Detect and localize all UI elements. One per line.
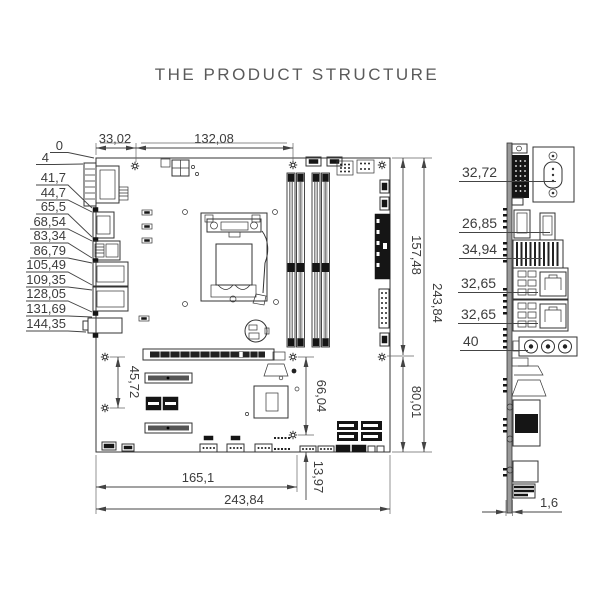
side-usb3-stack bbox=[513, 240, 563, 268]
dimension-interior: 45,72 66,04 bbox=[110, 357, 329, 435]
audio-connector bbox=[83, 318, 122, 333]
pcie-x16-slot bbox=[143, 349, 288, 376]
dim-top-33-02: 33,02 bbox=[99, 131, 132, 146]
dim-left-44-7: 44,7 bbox=[41, 185, 66, 200]
front-panel-header bbox=[274, 437, 290, 450]
side-displayport-connector bbox=[540, 213, 555, 240]
sata-ports bbox=[337, 421, 382, 441]
solder-pins bbox=[503, 208, 507, 477]
pcb-outline bbox=[96, 158, 390, 452]
dim-left-83-34: 83,34 bbox=[33, 228, 66, 243]
mounting-hole-icon bbox=[378, 161, 386, 169]
product-structure-drawing: THE PRODUCT STRUCTURE bbox=[0, 0, 600, 600]
dim-top-132-08: 132,08 bbox=[194, 131, 234, 146]
pch-chipset bbox=[254, 386, 288, 418]
dim-left-105-49: 105,49 bbox=[26, 257, 66, 272]
dim-left-65-5: 65,5 bbox=[41, 199, 66, 214]
dimension-top: 33,02 132,08 bbox=[96, 131, 293, 162]
pcie-x1-slot bbox=[145, 423, 192, 433]
dim-bottom-165-1: 165,1 bbox=[182, 470, 215, 485]
mounting-hole-icon bbox=[101, 353, 109, 361]
interior-headers-left bbox=[139, 210, 152, 321]
mounting-hole-icon bbox=[289, 353, 297, 361]
dim-left-86-79: 86,79 bbox=[33, 243, 66, 258]
dim-left-68-54: 68,54 bbox=[33, 214, 66, 229]
displayport-connector bbox=[93, 241, 120, 260]
motherboard-side-view: 32,72 26,85 34,94 32,65 32,65 40 1,6 bbox=[458, 143, 577, 516]
expansion-slots bbox=[143, 349, 288, 433]
dvi-serial-connector bbox=[84, 163, 128, 206]
dim-left-0: 0 bbox=[56, 138, 63, 153]
mounting-hole-icon bbox=[101, 404, 109, 412]
cpu-socket bbox=[201, 213, 268, 305]
motherboard-top-view bbox=[83, 157, 390, 452]
atx12v-power-connector bbox=[172, 160, 189, 176]
board-holes bbox=[183, 210, 300, 416]
dim-side-32-65-b: 32,65 bbox=[461, 306, 496, 322]
side-usb-lan-1 bbox=[513, 268, 568, 299]
mounting-hole-icon bbox=[289, 431, 297, 439]
dim-left-128-05: 128,05 bbox=[26, 286, 66, 301]
dim-side-26-85: 26,85 bbox=[462, 215, 497, 231]
side-usb-lan-2 bbox=[513, 300, 568, 331]
mounting-hole-icon bbox=[289, 161, 297, 169]
side-bracket-top bbox=[512, 144, 527, 153]
mini-slot-pair bbox=[146, 397, 178, 410]
atx-24pin-power-connector bbox=[375, 214, 390, 279]
dim-bottom-13-97: 13,97 bbox=[311, 461, 326, 494]
dim-left-4: 4 bbox=[42, 150, 49, 165]
pcie-latch bbox=[264, 364, 288, 376]
dimm-slots bbox=[287, 173, 330, 347]
dim-interior-66-04: 66,04 bbox=[314, 380, 329, 413]
usb-lan-connector-1 bbox=[93, 262, 128, 286]
dim-interior-45-72: 45,72 bbox=[127, 366, 142, 399]
dim-left-41-7: 41,7 bbox=[41, 170, 66, 185]
dim-right-80-01: 80,01 bbox=[409, 386, 424, 419]
dim-left-131-69: 131,69 bbox=[26, 301, 66, 316]
dim-right-243-84: 243,84 bbox=[430, 283, 445, 323]
mounting-hole-icon bbox=[131, 162, 139, 170]
dim-right-157-48: 157,48 bbox=[409, 235, 424, 275]
pcb-edge bbox=[507, 143, 512, 513]
cmos-battery bbox=[245, 320, 269, 342]
dim-left-144-35: 144,35 bbox=[26, 316, 66, 331]
dimension-right: 157,48 80,01 243,84 bbox=[387, 158, 445, 452]
side-audio-jacks bbox=[513, 337, 577, 356]
side-hdmi-connector bbox=[514, 210, 530, 238]
usb3-front-header bbox=[379, 289, 389, 328]
dim-side-32-72: 32,72 bbox=[462, 164, 497, 180]
pcie-x4-slot bbox=[145, 373, 192, 383]
pin-header-block-1 bbox=[337, 161, 353, 175]
side-dvi-connector bbox=[512, 155, 529, 205]
side-serial-connector bbox=[533, 147, 574, 202]
page-title: THE PRODUCT STRUCTURE bbox=[155, 65, 440, 84]
side-lower-brackets bbox=[512, 358, 546, 396]
dim-side-40: 40 bbox=[463, 333, 479, 349]
pin-header-block-2 bbox=[357, 160, 374, 173]
mounting-hole-icon bbox=[378, 353, 386, 361]
dim-bottom-243-84: 243,84 bbox=[224, 492, 264, 507]
dim-side-32-65-a: 32,65 bbox=[461, 275, 496, 291]
dim-side-34-94: 34,94 bbox=[462, 241, 497, 257]
top-edge-components bbox=[161, 157, 374, 176]
mounting-holes bbox=[101, 161, 386, 439]
usb-lan-connector-2 bbox=[93, 287, 128, 311]
right-edge-components bbox=[375, 180, 390, 346]
dim-side-1-6: 1,6 bbox=[540, 495, 558, 510]
dim-left-109-35: 109,35 bbox=[26, 272, 66, 287]
technical-drawing-page: THE PRODUCT STRUCTURE bbox=[0, 0, 600, 600]
